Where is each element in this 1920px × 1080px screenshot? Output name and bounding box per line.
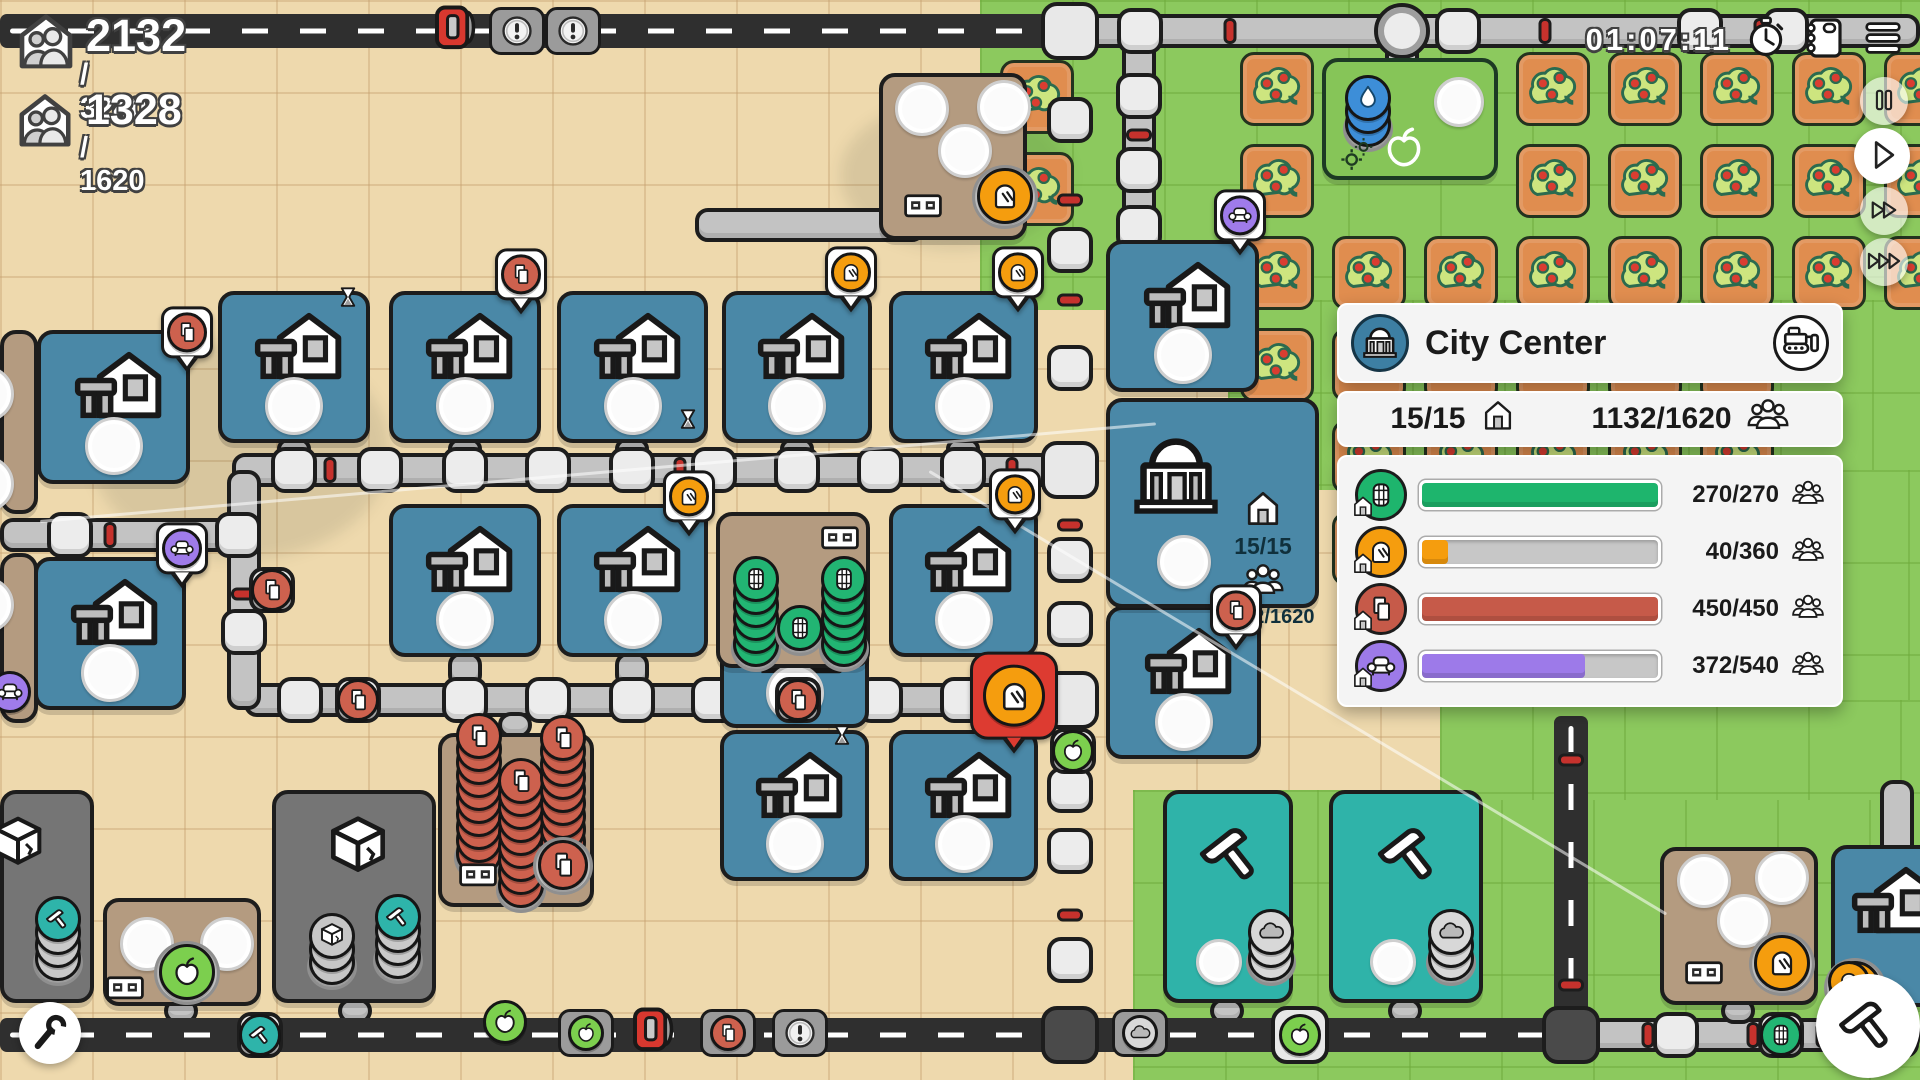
bread-icon — [838, 259, 864, 285]
wrench-icon — [29, 1011, 71, 1056]
resource-label-couch: 372/540 — [1673, 652, 1779, 680]
bang-icon — [554, 12, 592, 50]
barrel-icon — [741, 564, 771, 594]
house-icon — [1350, 493, 1376, 519]
hammer-icon — [1832, 989, 1904, 1061]
fff-icon — [1865, 242, 1903, 280]
paper-icon — [548, 723, 578, 753]
house-tile[interactable] — [1106, 240, 1259, 392]
resource-disc-barrel — [1760, 1014, 1802, 1056]
people-icon — [1791, 590, 1825, 629]
hammer-icon — [246, 1021, 274, 1049]
house-icon — [1479, 396, 1517, 442]
hammer-icon — [1192, 814, 1272, 894]
resource-bar-bread — [1419, 537, 1661, 567]
road-node — [609, 677, 655, 723]
resource-pin-couch[interactable] — [156, 522, 208, 574]
resource-row-icon-couch — [1355, 640, 1407, 692]
stopwatch-icon — [1744, 15, 1788, 64]
orchard-tile[interactable] — [1516, 52, 1590, 126]
bulldozer-icon — [1780, 321, 1822, 363]
road-connector — [1057, 294, 1083, 307]
fast-forward-button[interactable] — [1860, 187, 1908, 235]
resource-row-bread: 40/360 — [1355, 526, 1825, 578]
orchard-tile[interactable] — [1792, 236, 1866, 310]
house-icon — [1241, 486, 1285, 530]
cloud-icon — [1436, 917, 1466, 947]
press-tile[interactable] — [103, 898, 261, 1006]
resource-row-couch: 372/540 — [1355, 640, 1825, 692]
menu-icon — [1860, 15, 1906, 61]
pause-button[interactable] — [1860, 77, 1908, 125]
orchard-tile[interactable] — [1424, 236, 1498, 310]
road-node — [857, 447, 903, 493]
wrench-icon — [29, 1011, 71, 1053]
resource-disc-apple — [1052, 730, 1094, 772]
hamburger-icon — [1860, 49, 1906, 64]
people-icon — [1791, 476, 1825, 510]
stone-tile[interactable] — [272, 790, 436, 1003]
paper-icon — [258, 576, 286, 604]
resource-pin-paper[interactable] — [495, 248, 547, 300]
orchard-tile[interactable] — [1516, 236, 1590, 310]
road-connector — [1224, 18, 1237, 44]
house-icon — [1350, 493, 1376, 524]
orchard-tile[interactable] — [1608, 236, 1682, 310]
resource-pin-paper[interactable] — [1210, 584, 1262, 636]
bush-icon — [1710, 62, 1764, 116]
grass-area — [1440, 700, 1920, 800]
hammer-icon — [1370, 814, 1450, 894]
resource-label-barrel: 270/270 — [1673, 481, 1779, 509]
road-node — [277, 677, 323, 723]
pause-icon — [1867, 83, 1901, 120]
housing-house-icon — [14, 90, 76, 157]
hammer-icon — [1832, 989, 1904, 1064]
road-roundabout — [1374, 3, 1430, 59]
people-icon — [1791, 533, 1825, 572]
paper-icon — [784, 686, 812, 714]
trailer-bang — [772, 1009, 828, 1057]
trailer-apple — [558, 1009, 614, 1057]
hourglass-icon — [827, 723, 857, 758]
trailer-paper — [700, 1009, 756, 1057]
spaper-tile[interactable] — [438, 733, 594, 907]
hourglass-icon — [333, 285, 363, 320]
bread-icon — [676, 483, 702, 509]
panel-houses: 15/15 — [1390, 402, 1465, 436]
drop-icon — [1353, 83, 1383, 113]
barrel-icon — [785, 613, 815, 643]
bread-icon — [994, 675, 1035, 716]
house-tile[interactable] — [889, 291, 1038, 443]
panel-header: City Center — [1337, 303, 1843, 383]
road-junction — [1041, 441, 1099, 499]
paper-icon — [464, 721, 494, 751]
city-center-panel: City Center 15/15 1132/1620 270/270 40/3… — [1337, 303, 1843, 715]
road-node — [1047, 937, 1093, 983]
population-value: 2132 — [86, 10, 186, 62]
bush-icon — [1802, 246, 1856, 300]
road-node — [221, 609, 267, 655]
house-icon — [1350, 550, 1376, 576]
road-connector — [1057, 519, 1083, 532]
pause-icon — [1867, 83, 1901, 117]
resource-row-icon-bread — [1355, 526, 1407, 578]
bush-icon — [1618, 154, 1672, 208]
hourglass-icon — [827, 723, 857, 753]
trailer-cloud — [1112, 1009, 1168, 1057]
menu-button[interactable] — [1860, 15, 1906, 64]
road-node — [525, 447, 571, 493]
bush-icon — [1802, 154, 1856, 208]
resource-row-paper: 450/450 — [1355, 583, 1825, 635]
house-icon — [1479, 396, 1517, 434]
game-timer: 01:07:11 — [1586, 22, 1732, 58]
cube-icon — [0, 812, 50, 876]
couch-icon — [169, 535, 195, 561]
bush-icon — [1710, 154, 1764, 208]
house-icon — [1350, 664, 1376, 690]
road-node — [1116, 73, 1162, 119]
resource-bar-couch — [1419, 651, 1661, 681]
hudhouse-icon — [14, 10, 78, 74]
resource-pin-bread[interactable] — [663, 470, 715, 522]
game-screen: 15/151132/1620 2132 / 3240 1328 / 1620 0… — [0, 0, 1920, 1080]
bush-icon — [1526, 62, 1580, 116]
cloud-icon — [1256, 917, 1286, 947]
panel-title: City Center — [1425, 324, 1773, 363]
truck-icon — [430, 1, 486, 57]
appleoutline-icon — [1379, 123, 1429, 173]
bush-icon — [1526, 154, 1580, 208]
trailer-bang — [545, 7, 601, 55]
play-button[interactable] — [1854, 128, 1910, 184]
resource-label-bread: 40/360 — [1673, 538, 1779, 566]
truck-icon — [628, 1003, 684, 1059]
machine-icon — [103, 964, 147, 1008]
journal-button[interactable] — [1800, 14, 1848, 65]
road-connector — [1057, 194, 1083, 207]
resource-disc-apple — [1279, 1014, 1321, 1056]
resource-pin-bread[interactable] — [992, 246, 1044, 298]
bush-icon — [1342, 246, 1396, 300]
resource-row-barrel: 270/270 — [1355, 469, 1825, 521]
panel-population: 1132/1620 — [1591, 402, 1731, 436]
house-icon — [1350, 550, 1376, 581]
resource-disc-apple — [483, 1000, 527, 1044]
resource-row-icon-paper — [1355, 583, 1407, 635]
resource-pin-paper[interactable] — [161, 306, 213, 358]
bush-icon — [1434, 246, 1488, 300]
city-tile[interactable]: 15/151132/1620 — [1106, 398, 1319, 608]
city-center-icon — [1359, 320, 1401, 367]
bread-icon — [1005, 259, 1031, 285]
road-connector — [1642, 1022, 1655, 1048]
road-node — [271, 447, 317, 493]
apple-icon — [1059, 737, 1087, 765]
bread-icon — [987, 178, 1023, 214]
gears-icon — [1339, 135, 1377, 173]
bang-icon — [498, 12, 536, 50]
bush-icon — [1618, 246, 1672, 300]
stone-tile[interactable] — [0, 790, 94, 1003]
apple-icon — [169, 954, 205, 990]
orchard-tile[interactable] — [1608, 144, 1682, 218]
stopwatch-icon — [1744, 15, 1788, 59]
fast-forward-icon — [1866, 192, 1902, 231]
bush-icon — [1802, 62, 1856, 116]
citycenter-icon — [1124, 420, 1228, 524]
people-icon — [1791, 647, 1825, 681]
bush-icon — [1250, 62, 1304, 116]
couch-icon — [1227, 202, 1253, 228]
hourglass-icon — [673, 407, 703, 437]
road-connector — [104, 522, 117, 548]
people-icon — [1791, 590, 1825, 624]
hudhouse-icon — [14, 90, 76, 152]
delivery-truck — [628, 1003, 684, 1064]
road-node — [1047, 601, 1093, 647]
house-icon — [1350, 664, 1376, 695]
delivery-truck — [430, 1, 486, 62]
resource-disc-paper — [337, 679, 379, 721]
road-connector — [1057, 909, 1083, 922]
hourglass-icon — [333, 285, 363, 315]
road-connector — [1126, 129, 1152, 142]
paper-icon — [506, 766, 536, 796]
resource-disc-hammer — [239, 1014, 281, 1056]
house-tile[interactable] — [722, 291, 872, 443]
orchard-tile[interactable] — [1700, 144, 1774, 218]
resource-pin-bread[interactable] — [825, 246, 877, 298]
people-icon — [1746, 393, 1790, 445]
machine-icon — [456, 851, 500, 895]
road-connector — [1558, 979, 1584, 992]
play-icon — [1862, 135, 1902, 175]
paper-icon — [344, 686, 372, 714]
road-node — [1116, 147, 1162, 193]
machine-icon — [818, 514, 862, 558]
fastest-forward-button[interactable] — [1860, 238, 1908, 286]
road-node — [1047, 97, 1093, 143]
bush-icon — [1710, 246, 1764, 300]
workshop-tile[interactable] — [1163, 790, 1293, 1003]
paper-icon — [547, 849, 579, 881]
paper-icon — [174, 319, 200, 345]
people-icon — [1791, 476, 1825, 515]
workshop-tile[interactable] — [1329, 790, 1483, 1003]
build-button[interactable] — [1816, 974, 1920, 1078]
hourglass-icon — [673, 407, 703, 442]
apple-icon — [1286, 1021, 1314, 1049]
housing-max: / 1620 — [80, 132, 145, 198]
road-junction — [1041, 2, 1099, 60]
orchard-tile[interactable] — [1240, 52, 1314, 126]
bread-icon — [1764, 945, 1800, 981]
bang-icon — [781, 1014, 819, 1052]
road-node — [1047, 828, 1093, 874]
resource-disc-paper — [777, 679, 819, 721]
resource-pin-bread[interactable] — [989, 468, 1041, 520]
bush-icon — [1618, 62, 1672, 116]
resource-disc-paper — [251, 569, 293, 611]
orchard-tile[interactable] — [1332, 236, 1406, 310]
road-node — [1435, 8, 1481, 54]
orchard-tile[interactable] — [1700, 236, 1774, 310]
top-right-bar: 01:07:11 — [1586, 14, 1906, 65]
people-icon — [1791, 647, 1825, 686]
road-node — [357, 447, 403, 493]
resource-bar-paper — [1419, 594, 1661, 624]
journal-icon — [1800, 50, 1848, 65]
demolish-button[interactable] — [1773, 315, 1829, 371]
ff-icon — [1866, 192, 1902, 228]
apple-icon — [574, 1021, 598, 1045]
house-tile[interactable] — [34, 557, 186, 710]
road-connector — [1558, 754, 1584, 767]
resource-bar-barrel — [1419, 480, 1661, 510]
orchard-tile[interactable] — [1516, 144, 1590, 218]
paper-icon — [716, 1021, 740, 1045]
panel-summary: 15/15 1132/1620 — [1337, 391, 1843, 447]
road-connector — [324, 457, 337, 483]
cube-icon — [321, 811, 395, 885]
road-connector — [1539, 18, 1552, 44]
machine-icon — [1682, 949, 1726, 993]
road-node — [1047, 227, 1093, 273]
population-house-icon — [14, 10, 78, 79]
panel-resource-rows: 270/270 40/360 450/450 372/540 — [1337, 455, 1843, 707]
resource-row-icon-barrel — [1355, 469, 1407, 521]
house-icon — [1350, 607, 1376, 633]
paper-icon — [1223, 597, 1249, 623]
road-node — [940, 447, 986, 493]
sbarrel-tile[interactable] — [716, 512, 870, 668]
house-icon — [1350, 607, 1376, 638]
hammer-icon — [383, 902, 413, 932]
citycenter-icon — [1359, 320, 1401, 362]
people-icon — [1746, 393, 1790, 437]
tilehouse-icon — [1851, 857, 1920, 945]
bread-icon — [1002, 481, 1028, 507]
paper-icon — [508, 261, 534, 287]
resource-pin-couch[interactable] — [1214, 189, 1266, 241]
well-tile[interactable] — [1322, 58, 1498, 180]
bush-icon — [1526, 246, 1580, 300]
resource-pin-bread[interactable] — [970, 652, 1058, 740]
road-junction — [1542, 1006, 1600, 1064]
trailer-bang — [489, 7, 545, 55]
settings-button[interactable] — [19, 1002, 81, 1064]
machine-icon — [901, 182, 945, 226]
people-icon — [1791, 533, 1825, 567]
cube-icon — [317, 921, 347, 951]
couch-icon — [0, 678, 24, 706]
resource-label-paper: 450/450 — [1673, 595, 1779, 623]
house-tile[interactable] — [389, 504, 541, 657]
bakery-tile[interactable] — [1660, 847, 1818, 1005]
housing-value: 1328 — [86, 86, 182, 135]
cloud-icon — [1128, 1021, 1152, 1045]
hammer-icon — [43, 904, 73, 934]
play-icon — [1862, 135, 1902, 178]
bakery-tile[interactable] — [879, 73, 1027, 240]
bulldozer-icon — [1780, 321, 1822, 366]
fastest-forward-icon — [1865, 242, 1903, 283]
building-tile-partial[interactable] — [0, 330, 38, 514]
road-node — [215, 512, 261, 558]
road-node — [1653, 1012, 1699, 1058]
apple-icon — [490, 1007, 520, 1037]
city-center-panel-icon — [1351, 314, 1409, 372]
barrel-icon — [829, 564, 859, 594]
road-node — [1047, 345, 1093, 391]
notebook-icon — [1800, 14, 1848, 62]
road-junction — [1041, 1006, 1099, 1064]
road-node — [1117, 8, 1163, 54]
barrel-icon — [1767, 1021, 1795, 1049]
